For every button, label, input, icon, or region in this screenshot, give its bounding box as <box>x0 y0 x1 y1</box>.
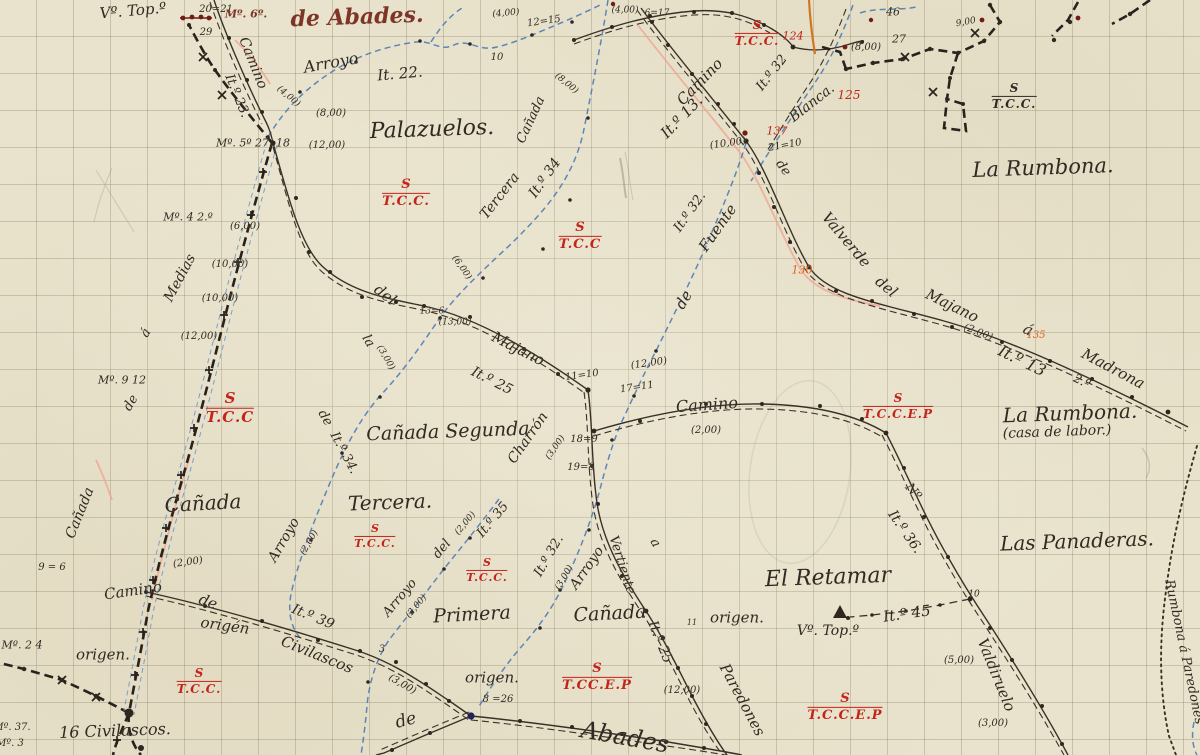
map-label: de <box>673 288 695 312</box>
map-label: (10,00) <box>202 294 238 304</box>
survey-fraction-label: ST.C.C. <box>177 667 222 695</box>
map-label: (4,00) <box>275 85 302 109</box>
map-label: It.º 34. <box>328 430 361 476</box>
map-label: (4,00) <box>611 7 638 16</box>
map-label: (10,00) <box>212 260 248 270</box>
survey-fraction-label: ST.C.C. <box>354 523 395 549</box>
map-label: Vº. Top.º <box>99 1 167 22</box>
survey-fraction-label: ST.C.C <box>206 391 254 426</box>
map-label: It.º 23. <box>222 73 251 120</box>
map-label: del <box>371 282 399 308</box>
map-label: Medias <box>162 252 199 304</box>
map-label: 10 <box>491 53 504 63</box>
map-label: de <box>197 592 219 612</box>
map-label: (12,00) <box>664 686 700 696</box>
map-label: It.º 35 <box>475 500 511 540</box>
map-label: (5,00) <box>944 656 974 666</box>
map-label: It.º 25 <box>645 619 675 665</box>
map-label: Civilascos <box>279 634 355 676</box>
map-label: origen. <box>710 611 764 626</box>
map-label: Nº <box>902 481 923 503</box>
map-label: 11 <box>687 619 697 627</box>
map-label: It.º 34 <box>527 156 564 200</box>
map-label: (6,00) <box>450 254 473 281</box>
map-label: 17=11 <box>620 381 655 396</box>
map-label: (8,00) <box>553 72 580 96</box>
map-label: 27 <box>892 34 906 45</box>
map-label: It.º 32 <box>754 53 790 94</box>
map-label: It.º 32. <box>672 190 709 235</box>
map-labels: Vº. Top.º20=2129Mº. 6º.de Abades.CaminoI… <box>0 0 1200 755</box>
map-label: Cañada <box>164 491 242 515</box>
map-label: Arroyo <box>302 50 359 75</box>
map-label: Mº. 4 2.º <box>163 212 213 223</box>
map-label: Blanca. <box>787 81 837 125</box>
map-label: a <box>647 536 662 549</box>
map-label: de <box>315 408 334 428</box>
map-label: (12,00) <box>630 357 667 372</box>
map-label: Palazuelos. <box>369 117 494 143</box>
map-label: 11=10 <box>565 369 600 384</box>
map-label: Majano <box>923 287 980 325</box>
map-label: Cañada <box>573 603 647 626</box>
map-label: á <box>138 326 153 339</box>
map-label: 16 Civilascos. <box>59 721 171 741</box>
survey-fraction-label: ST.C.C. <box>735 19 780 47</box>
map-label: Camino <box>103 580 163 603</box>
map-label: Las Panaderas. <box>1000 528 1154 553</box>
map-label: (2,00) <box>962 323 994 344</box>
map-label: de <box>394 710 419 732</box>
map-label: Vº. Top.º <box>797 624 859 638</box>
map-label: Mº. 5º 27, 18 <box>216 138 290 149</box>
survey-map-sheet: Vº. Top.º20=2129Mº. 6º.de Abades.CaminoI… <box>0 0 1200 755</box>
map-label: El Retamar <box>765 565 892 591</box>
survey-fraction-label: ST.C.C.E.P <box>807 692 882 722</box>
map-label: Mº. 37. <box>0 723 31 733</box>
map-label: 6=17 <box>645 10 670 19</box>
map-label: del <box>872 274 899 300</box>
survey-fraction-label: ST.C.C. <box>992 82 1037 110</box>
map-label: Valdiruelo <box>975 636 1018 713</box>
map-label: It.º 39 <box>290 602 336 632</box>
map-label: (3,00) <box>545 434 568 461</box>
map-label: (2,00) <box>691 426 721 436</box>
map-label: 29 <box>200 28 213 38</box>
map-label: (3,00) <box>374 344 395 372</box>
map-label: Primera <box>433 603 512 626</box>
map-label: (2,00) <box>454 511 478 538</box>
survey-fraction-label: ST.C.C.E.P <box>863 392 933 420</box>
map-label: 13=6 <box>420 308 445 317</box>
map-label: Tercera. <box>348 491 433 514</box>
map-label: La Rumbona. <box>1002 401 1137 426</box>
map-label: It.º 25 <box>469 365 515 398</box>
map-label: Rumbona á Paredones <box>1162 579 1200 726</box>
map-label: Abades <box>579 717 671 755</box>
map-label: 18=9 <box>570 435 597 445</box>
map-label: (13,00) <box>439 319 472 328</box>
map-label: Fuente <box>697 202 740 254</box>
map-label: Valverde <box>819 210 873 270</box>
map-label: 137 <box>767 126 788 137</box>
map-label: Vertiente <box>606 534 637 596</box>
map-label: Camino <box>676 395 739 415</box>
map-label: 46 <box>886 7 900 18</box>
map-label: It.º 36. <box>885 508 925 556</box>
map-label: 135 <box>1026 331 1045 341</box>
map-label: (casa de labor.) <box>1002 423 1111 441</box>
map-label: Cañada Segunda <box>366 420 530 445</box>
survey-fraction-label: ST.C.C. <box>382 178 430 208</box>
map-label: Cañada <box>63 485 96 540</box>
map-label: Paredones <box>717 661 767 738</box>
survey-fraction-label: ST.C.C <box>559 221 602 251</box>
map-label: It.º 13 <box>996 343 1049 380</box>
map-label: 9 = 6 <box>38 563 65 573</box>
map-label: Mº. 9 12 <box>98 375 146 386</box>
map-label: 124 <box>783 31 804 42</box>
map-label: 125 <box>838 89 861 101</box>
map-label: Mº. 6º. <box>225 9 267 20</box>
map-label: 130 <box>792 265 813 276</box>
map-label: de Abades. <box>290 4 424 31</box>
map-label: (2,00) <box>299 529 320 557</box>
map-label: (4,00) <box>492 8 520 19</box>
map-label: (12,00) <box>309 141 345 151</box>
map-label: Arroyo <box>266 516 302 565</box>
map-label: 21=10 <box>767 138 802 154</box>
map-label: Mº. 3 <box>0 739 24 749</box>
map-label: 8 =26 <box>483 695 514 705</box>
map-label: 3 <box>379 645 385 655</box>
map-label: la <box>359 333 376 350</box>
map-label: Majano <box>489 329 546 368</box>
map-label: 10 <box>968 591 979 600</box>
map-label: de <box>121 393 140 413</box>
map-label: 12=15 <box>527 15 562 30</box>
map-label: origén <box>200 615 251 637</box>
survey-fraction-label: ST.CC.E.P <box>562 662 632 692</box>
map-label: (8,00) <box>316 109 346 119</box>
map-label: 2.º <box>1072 372 1093 390</box>
map-label: Tercera <box>478 170 523 221</box>
map-label: It.º 45 <box>882 603 931 624</box>
map-label: (2,00) <box>172 556 203 570</box>
map-label: (6,00) <box>230 222 260 232</box>
map-label: de <box>773 158 793 179</box>
map-label: (10,00) <box>709 137 746 152</box>
map-label: origen. <box>465 671 519 686</box>
map-label: It. 22. <box>377 65 423 84</box>
map-label: (8,00) <box>851 43 881 53</box>
map-label: origen. <box>76 648 130 663</box>
map-label: 19=8 <box>567 463 594 473</box>
map-label: Cañada <box>515 95 548 146</box>
survey-fraction-label: ST.C.C. <box>466 557 507 583</box>
map-label: del <box>431 537 454 561</box>
map-label: Camino <box>236 35 269 91</box>
map-label: (12,00) <box>181 332 217 342</box>
map-label: (3,00) <box>978 719 1008 729</box>
map-label: 9,00 <box>955 17 976 29</box>
map-label: (3,00) <box>386 673 417 697</box>
map-label: La Rumbona. <box>972 155 1114 181</box>
map-label: Mº. 2 4 <box>2 640 43 651</box>
